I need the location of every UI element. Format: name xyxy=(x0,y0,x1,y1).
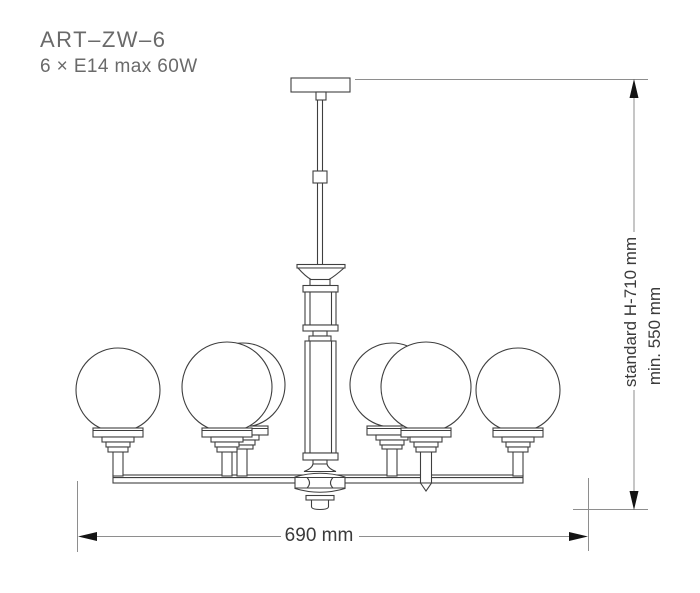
stem-column xyxy=(303,286,338,465)
product-dimension-diagram: ART–ZW–6 6 × E14 max 60W 690 mm standard… xyxy=(0,0,700,593)
globe-shade xyxy=(182,342,272,432)
arrow-left-icon xyxy=(78,532,97,541)
canopy-collar xyxy=(316,92,326,100)
height-standard-label: standard H-710 mm xyxy=(621,237,641,387)
globe-fitter xyxy=(493,428,543,452)
dimension-arrows xyxy=(78,79,639,541)
arrow-down-icon xyxy=(630,491,639,510)
arm-bevel xyxy=(421,483,432,491)
globe-fitter xyxy=(93,428,143,452)
center-hub xyxy=(295,464,345,492)
rod-joint xyxy=(313,171,327,183)
globe-shade xyxy=(476,348,560,432)
product-spec: 6 × E14 max 60W xyxy=(40,56,198,78)
center-stem xyxy=(291,78,350,510)
product-code: ART–ZW–6 xyxy=(40,27,167,53)
width-dimension-label: 690 mm xyxy=(285,525,354,547)
chandelier-technical-drawing xyxy=(0,0,700,593)
globe-shade xyxy=(76,348,160,432)
arrow-up-icon xyxy=(630,79,639,98)
finial xyxy=(306,496,334,510)
globe-shade xyxy=(381,342,471,432)
stem-saucer xyxy=(297,265,345,286)
ceiling-canopy xyxy=(291,78,350,92)
height-min-label: min. 550 mm xyxy=(645,287,665,385)
arrow-right-icon xyxy=(569,532,588,541)
chandelier-fixture xyxy=(76,78,560,510)
